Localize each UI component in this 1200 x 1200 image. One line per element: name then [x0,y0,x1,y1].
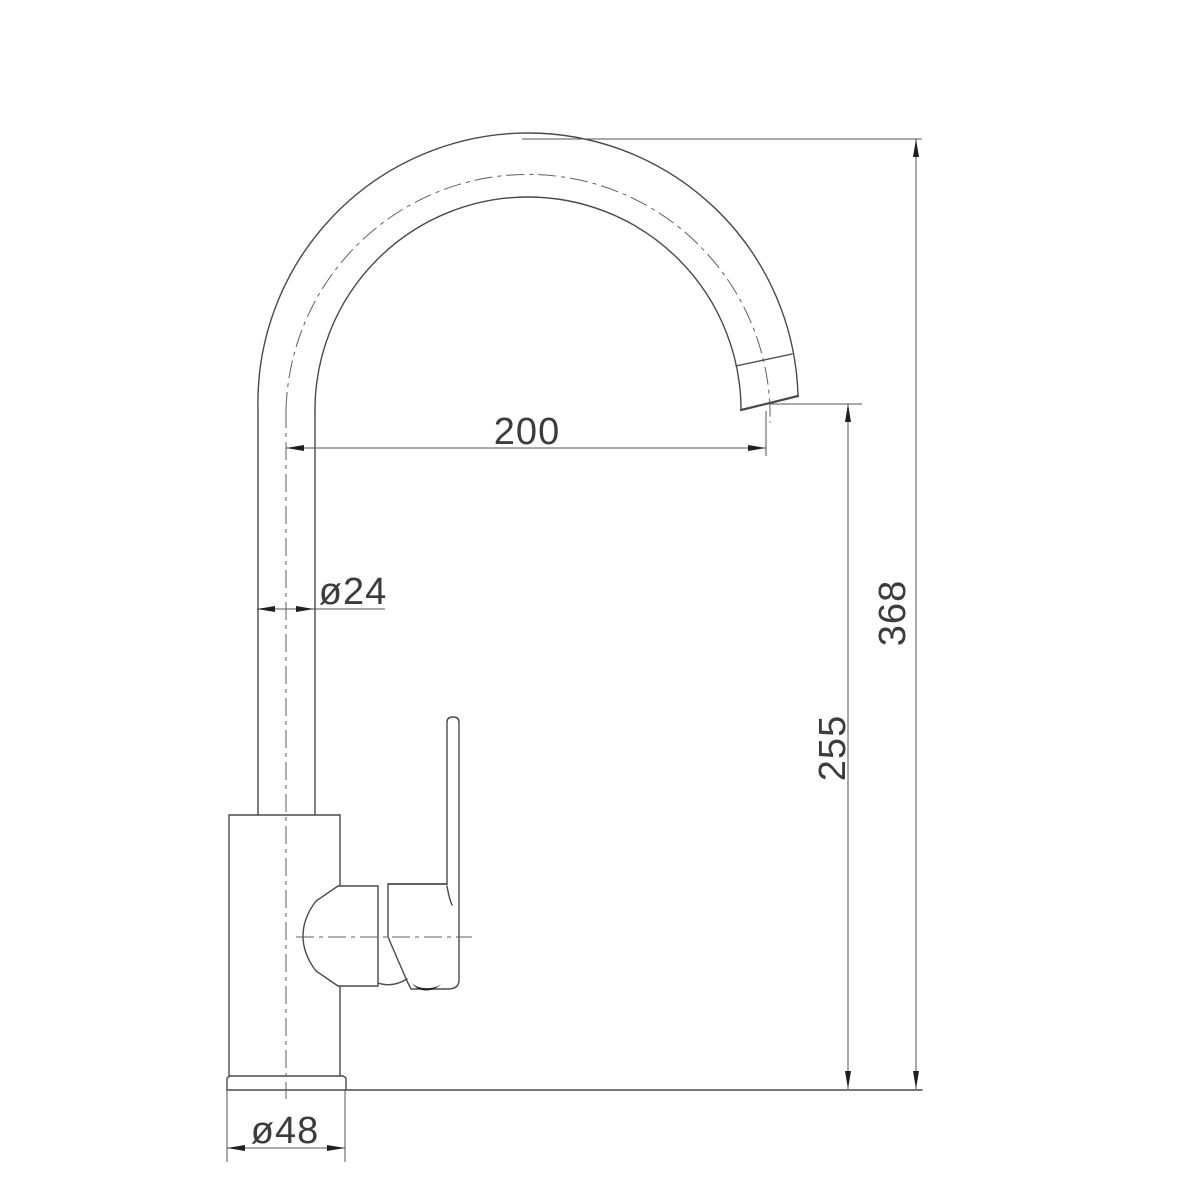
dim-48-arrow-right [327,1145,345,1151]
dim-368-arrow-bottom [913,1071,919,1089]
dim-48-label: ø48 [251,1110,319,1152]
dim-24-arrow-left [257,606,275,612]
dim-255-label: 255 [812,715,854,781]
spout-outer-arc [258,133,798,410]
dim-200-label: 200 [494,411,560,453]
arrowhead-group [227,139,919,1151]
dim-255-arrow-top [845,404,851,422]
dim-368-label: 368 [872,580,914,646]
spout-inner-arc [315,197,741,410]
dim-368-arrow-top [913,139,919,157]
aerator-joint-line [736,354,792,366]
dim-24-arrow-right [296,606,314,612]
cartridge-bottom-arc [378,979,407,985]
dimension-line-group [227,139,922,1162]
spout-centerline-arc [286,174,770,423]
valve-cone-outline [303,886,378,986]
dim-200-arrow-right [748,445,766,451]
dim-255-arrow-bottom [845,1071,851,1089]
dim-48-arrow-left [227,1145,245,1151]
dim-200-arrow-left [286,445,304,451]
dimension-label-group: 200 ø24 368 255 ø48 [251,411,914,1152]
handle-outline [388,717,459,989]
technical-drawing: 200 ø24 368 255 ø48 [0,0,1200,1200]
drawing-canvas: 200 ø24 368 255 ø48 [0,0,1200,1200]
dim-24-label: ø24 [319,571,387,613]
